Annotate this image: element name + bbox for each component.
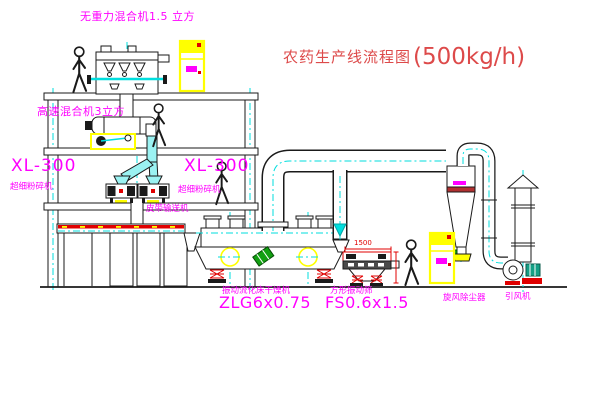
- label-screen-model: FS0.6x1.5: [325, 295, 409, 312]
- label-fan: 引风机: [505, 293, 531, 302]
- worker-ground: [405, 240, 418, 285]
- page-title: 农药生产线流程图 (500kg/h): [283, 44, 525, 70]
- high-speed-mixer: [85, 117, 156, 149]
- title-capacity: (500kg/h): [413, 44, 525, 70]
- mill-left: [106, 184, 137, 203]
- label-belt-conveyor: 皮带输送机: [146, 205, 189, 214]
- control-cabinet-right: [430, 233, 454, 283]
- label-screen-width-dim: 1500: [354, 240, 372, 247]
- label-top-mixer: 无重力混合机1.5 立方: [80, 11, 195, 23]
- cad-flow-diagram: 农药生产线流程图 (500kg/h) 无重力混合机1.5 立方 高速混合机3立方…: [0, 0, 600, 403]
- cyclone-separator: [447, 149, 508, 263]
- mill-center: [138, 184, 169, 203]
- label-mill-center-name: 超细粉碎机: [178, 186, 221, 195]
- label-cyclone: 旋风除尘器: [443, 294, 486, 303]
- label-dryer-model: ZLG6x0.75: [219, 295, 311, 312]
- label-mill-center-model: XL-300: [184, 158, 249, 176]
- worker-top-floor: [73, 47, 86, 92]
- induced-draft-fan: [503, 170, 542, 292]
- label-mill-left-model: XL-300: [11, 158, 76, 176]
- label-high-speed-mixer: 高速混合机3立方: [37, 106, 125, 118]
- title-text: 农药生产线流程图: [283, 46, 411, 70]
- label-mill-left-name: 超细粉碎机: [10, 183, 53, 192]
- control-cabinet-top: [180, 41, 204, 91]
